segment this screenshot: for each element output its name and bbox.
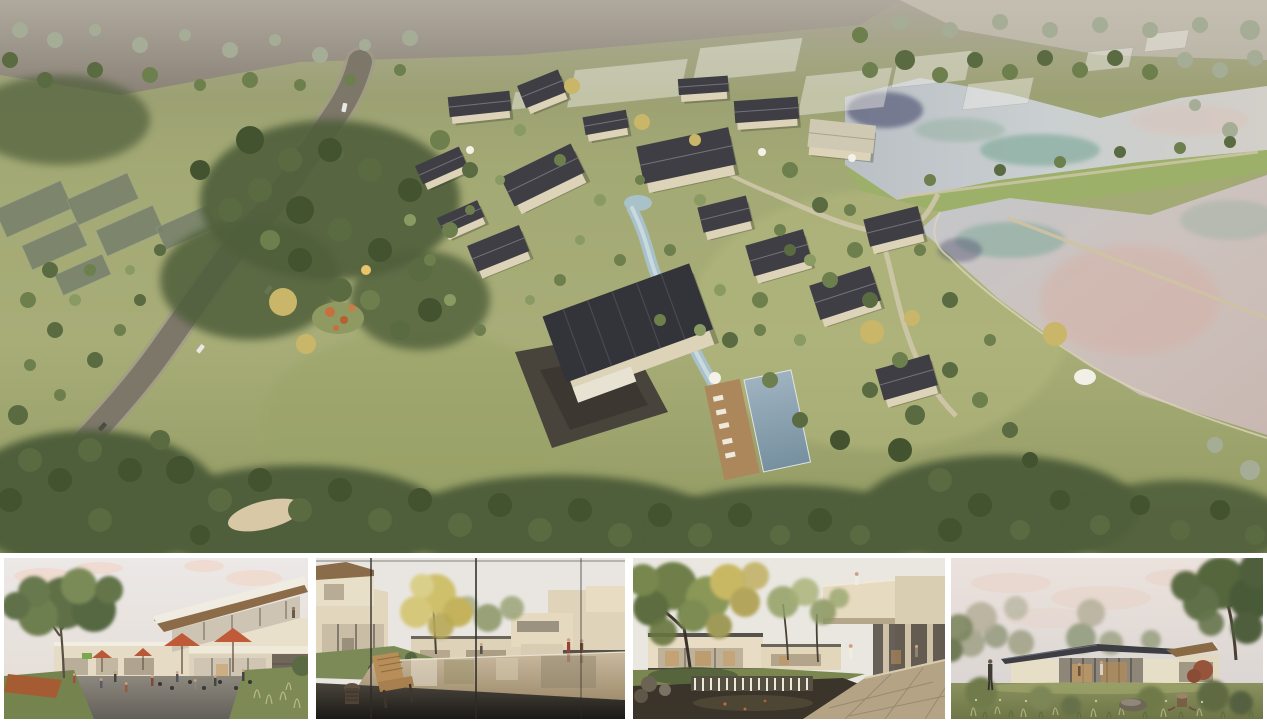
- thumbnail-garden-waterfall: [633, 558, 945, 719]
- back-wing: [761, 644, 841, 670]
- light-roof-pavilion: [806, 119, 877, 163]
- sun-shade: [361, 265, 371, 275]
- person-on-roof: [855, 576, 858, 585]
- figure-inside: [1100, 664, 1103, 675]
- thumbnail-street-plaza: [4, 558, 308, 719]
- hero-aerial-rendering: [0, 0, 1267, 553]
- design-board: [0, 0, 1267, 724]
- waterfall: [695, 678, 807, 691]
- thumbnail-lawn-pavilion: [951, 558, 1263, 719]
- green-sign: [82, 653, 92, 659]
- shade-canopy: [1074, 369, 1096, 385]
- thumbnail-courtyard-pond: [316, 558, 625, 719]
